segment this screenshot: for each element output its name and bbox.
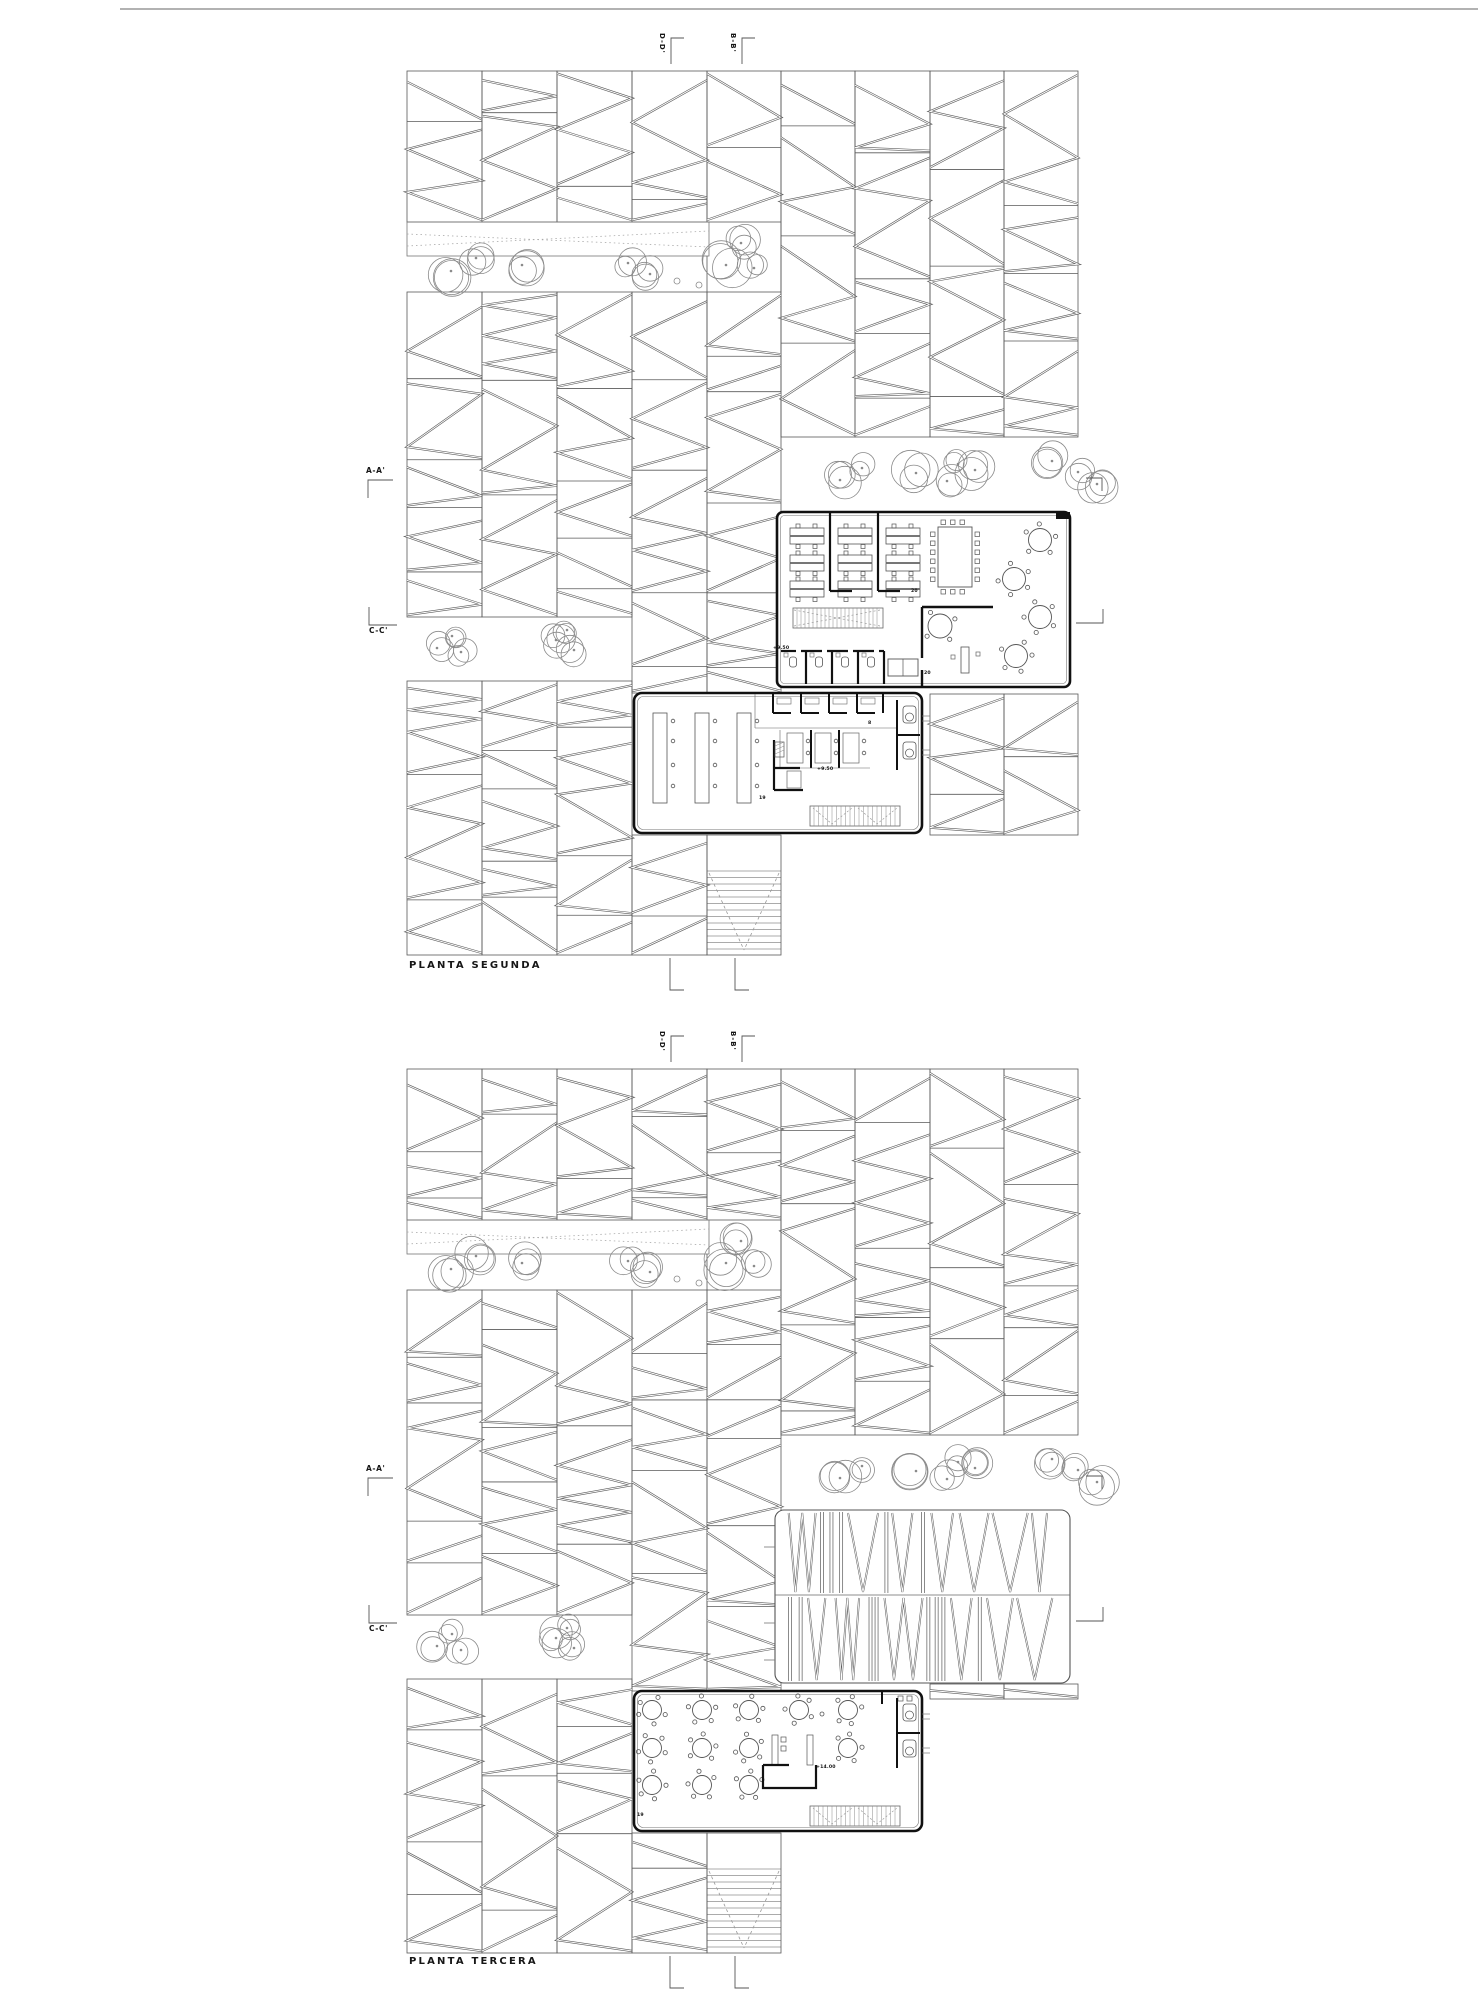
plan1-title: PLANTA SEGUNDA	[409, 961, 542, 971]
room-number-hall: 19	[759, 796, 766, 801]
level-annotation-cafeteria: +14.00	[816, 1765, 836, 1770]
section-label-cc-2: C-C'	[369, 1625, 388, 1633]
room-number-small: 8	[868, 721, 871, 726]
section-label-dd-1: D-D'	[658, 33, 665, 54]
section-label-dd-2: D-D'	[658, 1031, 665, 1052]
section-label-aa-1: A-A'	[366, 467, 385, 475]
level-annotation-office: +9.50	[773, 646, 789, 651]
room-number-office-1: 20	[911, 589, 918, 594]
room-number-office-2: 20	[924, 671, 931, 676]
section-label-bb-1: B-B'	[729, 33, 736, 53]
level-annotation-hall: +9.50	[817, 767, 833, 772]
room-number-cafeteria: 19	[637, 1813, 644, 1818]
section-label-aa-2: A-A'	[366, 1465, 385, 1473]
section-label-cc-1: C-C'	[369, 627, 388, 635]
section-label-bb-2: B-B'	[729, 1031, 736, 1051]
sheet: PLANTA SEGUNDA A-A' C-C' D-D' B-B' +9.50…	[0, 0, 1480, 2000]
plan2-title: PLANTA TERCERA	[409, 1957, 538, 1967]
site-plan-linework	[0, 0, 1480, 2000]
